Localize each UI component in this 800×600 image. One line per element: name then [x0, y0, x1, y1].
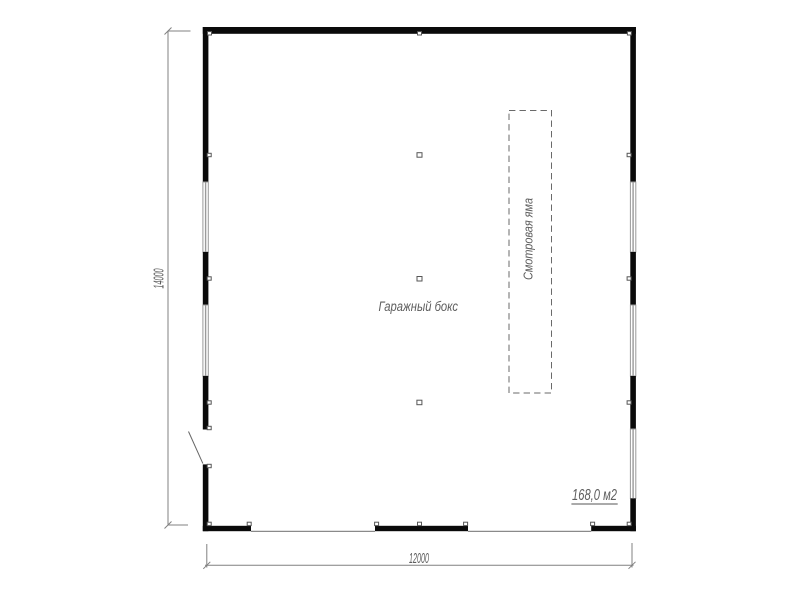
svg-text:Гаражный бокс: Гаражный бокс — [379, 299, 459, 314]
svg-text:14000: 14000 — [151, 268, 168, 288]
svg-text:Смотровая яма: Смотровая яма — [521, 198, 536, 280]
svg-text:12000: 12000 — [409, 550, 429, 567]
svg-text:168,0 м2: 168,0 м2 — [572, 487, 617, 504]
